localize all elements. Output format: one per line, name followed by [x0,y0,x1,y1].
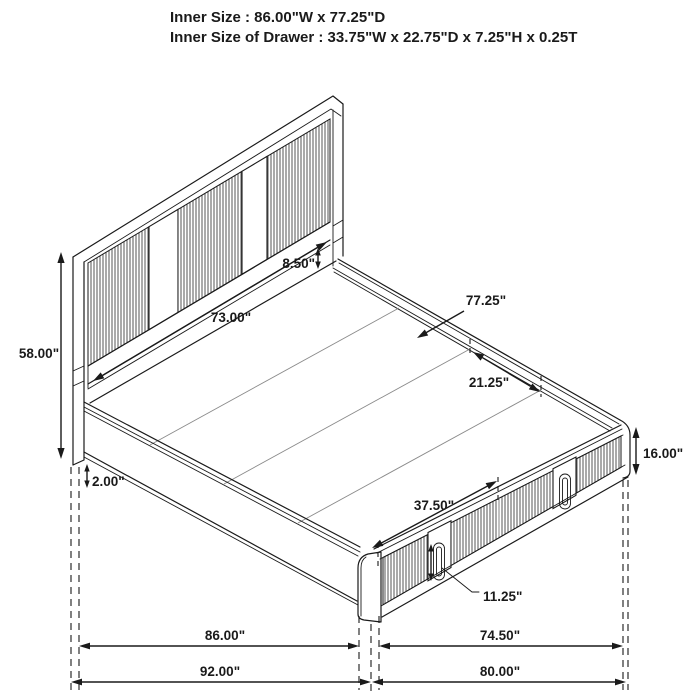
headboard-panel-gap-1 [149,209,178,329]
dim-overall-depth: 80.00" [372,664,626,685]
deck-board-seam-1 [150,308,399,445]
dim-label-panel-width: 73.00" [211,310,251,325]
dim-label-rail-height: 8.50" [282,256,315,271]
bed-line-drawing: 58.00" 73.00" 8.50" 77.25" 21.25" 2.00" … [0,0,700,700]
dim-label-deck-depth: 77.25" [466,293,506,308]
headboard-side-step-1 [333,220,343,226]
headboard-slat-panel-2 [178,171,242,312]
footboard-base-top [381,465,625,606]
dim-headboard-height: 58.00" [19,252,65,459]
far-rail-outer-edge [338,259,620,420]
dimension-diagram: 58.00" 73.00" 8.50" 77.25" 21.25" 2.00" … [0,0,700,700]
extension-lines [71,339,628,694]
dim-footboard-inner-width: 74.50" [379,628,623,649]
headboard-slat-panel-1 [88,227,149,366]
dim-label-headboard-height: 58.00" [19,346,59,361]
headboard-side-step-2 [333,237,343,243]
dim-inner-width: 86.00" [79,628,359,649]
headboard-slat-panel-3 [267,119,330,259]
headboard-panel-gap-2 [242,156,267,274]
far-rail-inner-lip [333,268,612,428]
dim-label-floor-clearance: 2.00" [92,474,125,489]
headboard-post-notch-1 [73,366,84,371]
drawer-stile-2 [553,457,576,509]
far-rail-outer-edge-2 [339,263,619,424]
header-notes: Inner Size : 86.00"W x 77.25"D Inner Siz… [170,9,577,46]
drawer-size-note: Inner Size of Drawer : 33.75"W x 22.75"D… [170,29,577,46]
dim-label-footboard-inner-width: 74.50" [480,628,520,643]
headboard-left-post [73,257,84,465]
dim-label-overall-depth: 80.00" [480,664,520,679]
deck-board-seam-2 [224,349,470,484]
dim-rail-height: 8.50" [282,248,320,271]
headboard-post-notch-2 [73,381,84,386]
dim-label-handle-height: 11.25" [483,589,522,604]
front-corner-leg-profile [361,557,366,616]
dim-label-inner-width: 86.00" [205,628,245,643]
inner-size-note: Inner Size : 86.00"W x 77.25"D [170,9,385,26]
dim-overall-width: 92.00" [71,664,371,685]
dim-label-platform-height: 16.00" [643,446,683,461]
dim-platform-height: 16.00" [633,427,684,475]
dim-label-overall-width: 92.00" [200,664,240,679]
dim-label-drawer-span: 37.50" [414,498,454,513]
dim-label-deck-board-width: 21.25" [469,375,509,390]
